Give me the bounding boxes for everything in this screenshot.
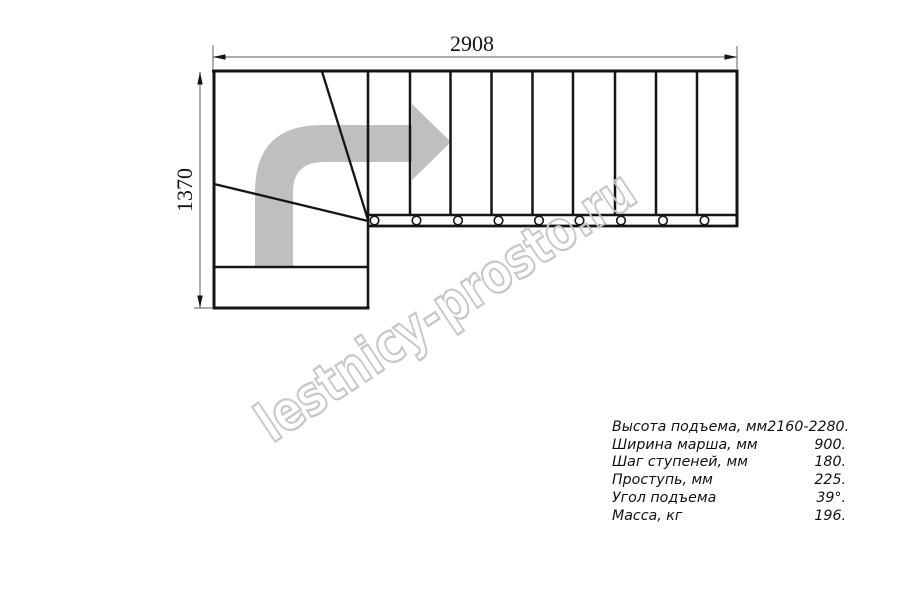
baluster-circle <box>700 216 709 225</box>
spec-label: Проступь, мм <box>612 472 713 490</box>
spec-value: 225. <box>814 472 846 490</box>
spec-row: Угол подъема 39°. <box>612 490 846 508</box>
spec-label: Ширина марша, мм <box>612 437 758 455</box>
spec-row: Проступь, мм 225. <box>612 472 846 490</box>
spec-row: Высота подъема, мм 2160-2280. <box>612 419 846 437</box>
dimension-arrowhead <box>197 72 202 85</box>
spec-label: Высота подъема, мм <box>612 419 767 437</box>
dimension-arrowhead <box>213 54 226 59</box>
baluster-circle <box>370 216 379 225</box>
curved-right-arrow-icon <box>255 104 451 268</box>
spec-row: Шаг ступеней, мм 180. <box>612 454 846 472</box>
spec-value: 39°. <box>816 490 846 508</box>
spec-row: Масса, кг 196. <box>612 508 846 526</box>
spec-label: Масса, кг <box>612 508 682 526</box>
spec-value: 900. <box>814 437 846 455</box>
dimension-arrowhead <box>197 296 202 309</box>
tread-dividers <box>410 71 697 215</box>
left-dimension: 1370 <box>172 72 212 308</box>
watermark-text: lestnicy-prosto.ru <box>244 158 647 455</box>
top-dimension: 2908 <box>213 31 737 69</box>
baluster-circle <box>412 216 421 225</box>
spec-row: Ширина марша, мм 900. <box>612 437 846 455</box>
baluster-circle <box>494 216 503 225</box>
baluster-circle <box>454 216 463 225</box>
staircase-plan-page: 2908 1370 lestnicy-prosto.ru Высота подъ… <box>0 0 900 600</box>
spec-label: Шаг ступеней, мм <box>612 454 748 472</box>
walk-direction-arrow <box>255 104 451 268</box>
spec-value: 180. <box>814 454 846 472</box>
spec-value: 196. <box>814 508 846 526</box>
spec-table: Высота подъема, мм 2160-2280. Ширина мар… <box>612 419 846 525</box>
dimension-arrowhead <box>725 54 738 59</box>
top-dimension-label: 2908 <box>450 31 494 56</box>
left-dimension-label: 1370 <box>172 168 197 212</box>
spec-label: Угол подъема <box>612 490 716 508</box>
baluster-circle <box>659 216 668 225</box>
spec-value: 2160-2280. <box>767 419 849 437</box>
